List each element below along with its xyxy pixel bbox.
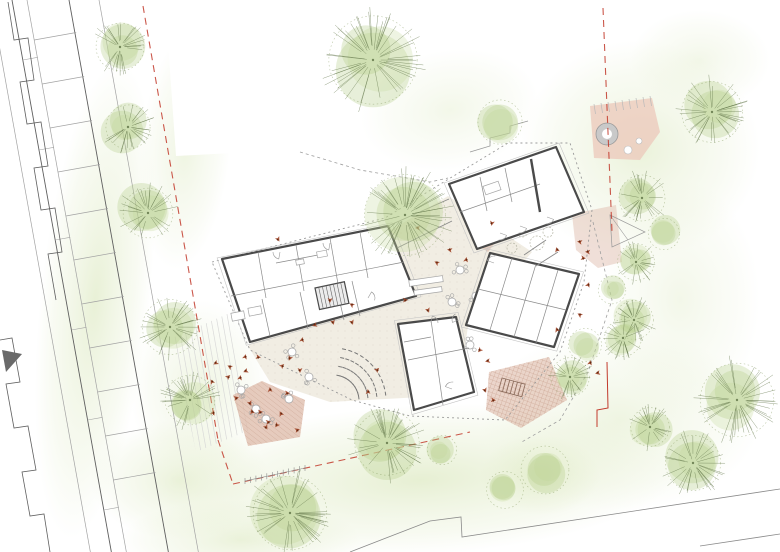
seat-mark <box>376 393 377 397</box>
canopy-blob <box>651 215 681 245</box>
canopy-blob <box>607 281 624 298</box>
canopy-blob <box>383 182 443 242</box>
trunk <box>569 376 571 378</box>
trunk <box>169 326 171 328</box>
site-plan-drawing <box>0 0 780 552</box>
trunk <box>641 197 643 199</box>
play-element <box>636 138 642 144</box>
play-mound-top <box>602 129 612 139</box>
play-element <box>624 146 632 154</box>
canopy-blob <box>477 105 513 141</box>
trunk <box>404 214 406 216</box>
seat-mark <box>367 394 368 398</box>
seat-mark <box>385 392 386 396</box>
canopy-blob <box>427 436 454 463</box>
site-plan-page <box>0 0 780 552</box>
trunk <box>711 111 713 113</box>
trunk <box>386 442 388 444</box>
canopy-blob <box>257 485 321 549</box>
trunk <box>622 337 624 339</box>
canopy-blob <box>528 453 561 486</box>
white-block-layer <box>165 0 330 156</box>
trunk <box>649 426 651 428</box>
trunk <box>127 126 129 128</box>
canopy-blob <box>128 190 167 229</box>
trunk <box>147 212 149 214</box>
canopy-blob <box>691 90 739 138</box>
trunk <box>633 319 635 321</box>
canopy-blob <box>614 324 636 346</box>
canopy-blob <box>492 476 516 500</box>
trunk <box>119 46 121 48</box>
trunk <box>635 261 637 263</box>
trunk <box>189 399 191 401</box>
existing-building-block <box>165 0 330 156</box>
furniture-table <box>296 259 305 265</box>
canopy-blob <box>665 430 718 483</box>
trunk <box>289 512 291 514</box>
canopy-blob <box>574 332 600 358</box>
trunk <box>736 399 738 401</box>
trunk <box>692 462 694 464</box>
trunk <box>372 59 374 61</box>
